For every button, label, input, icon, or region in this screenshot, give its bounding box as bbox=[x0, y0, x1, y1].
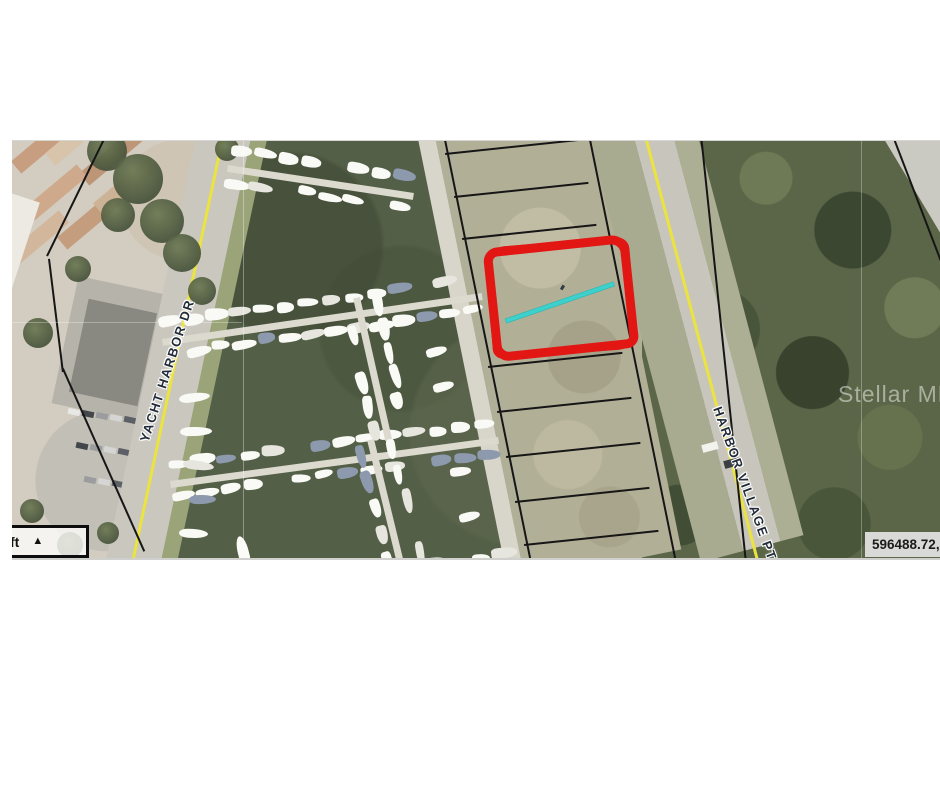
parked-car bbox=[110, 414, 123, 422]
parcel-highlight-outline bbox=[482, 234, 639, 363]
scale-collapse-arrow-icon[interactable]: ▲ bbox=[32, 536, 43, 547]
tree-canopy bbox=[20, 499, 44, 523]
map-canvas[interactable]: YACHT HARBOR DR HARBOR VILLAGE PT Stella… bbox=[12, 140, 940, 560]
scale-unit-label: ft bbox=[12, 534, 19, 550]
parked-car bbox=[84, 476, 97, 484]
watermark: Stellar MLS bbox=[838, 381, 940, 408]
parked-car bbox=[96, 412, 109, 420]
map-gridline bbox=[243, 141, 244, 558]
parked-car bbox=[104, 446, 117, 454]
parked-car bbox=[76, 442, 89, 450]
tree-canopy bbox=[113, 154, 163, 204]
tree-canopy bbox=[97, 522, 119, 544]
map-gridline bbox=[12, 322, 242, 323]
parked-car bbox=[68, 408, 81, 416]
tree-canopy bbox=[65, 256, 91, 282]
parked-car bbox=[98, 478, 111, 486]
tree-canopy bbox=[163, 234, 201, 272]
page: YACHT HARBOR DR HARBOR VILLAGE PT Stella… bbox=[0, 0, 940, 788]
scale-bar: ft ▲ bbox=[12, 525, 89, 558]
map-gridline bbox=[861, 141, 862, 558]
coordinate-readout: 596488.72, 1 bbox=[865, 532, 940, 557]
tree-canopy bbox=[101, 198, 135, 232]
